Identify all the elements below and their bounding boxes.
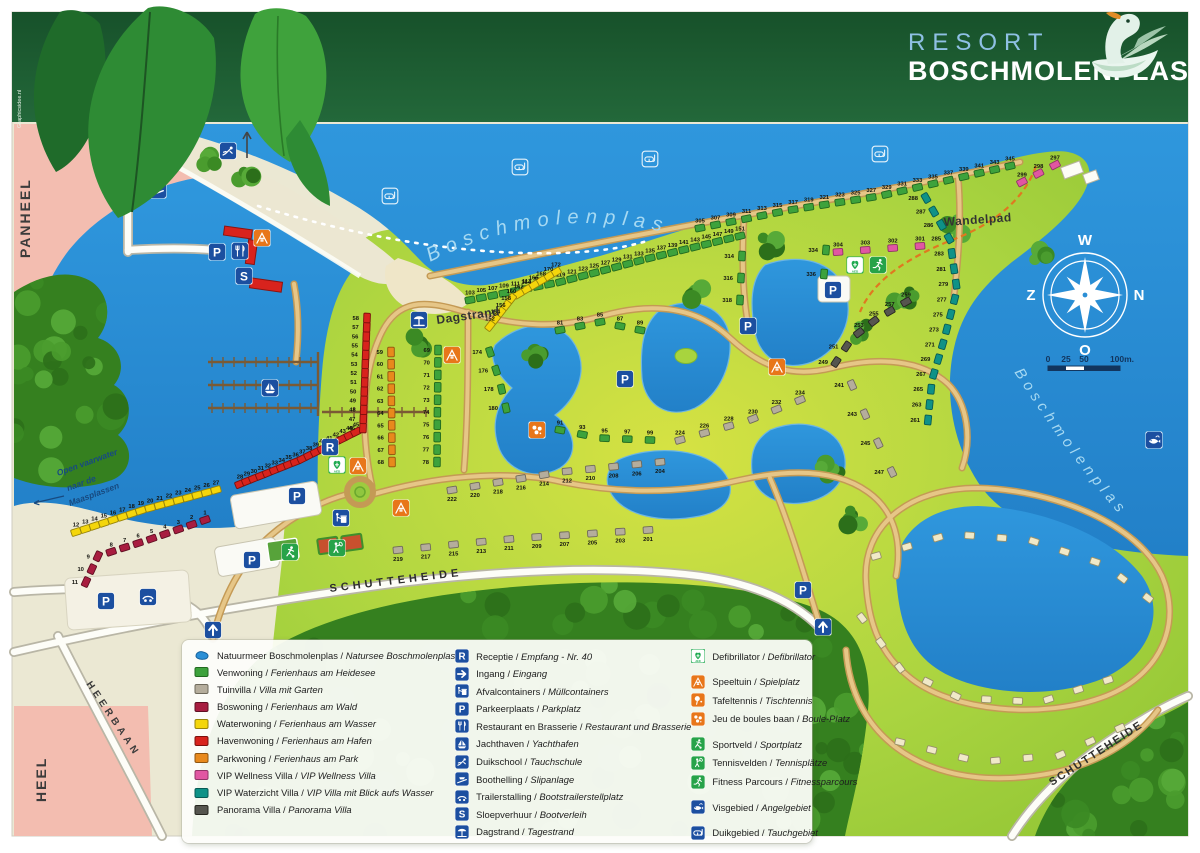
svg-text:10: 10 [77,567,83,573]
legend-item-label: Fitness Parcours / Fitnessparcours [712,776,857,787]
playground-icon [444,347,461,364]
svg-text:230: 230 [748,409,758,415]
plot-venwoning: 343 [989,160,1000,174]
svg-text:147: 147 [713,232,723,238]
compass-n: N [1134,287,1145,304]
playground-icon [769,359,786,376]
trash-icon [455,684,469,698]
svg-text:75: 75 [423,423,430,429]
svg-text:224: 224 [675,431,685,437]
parking-icon [289,488,306,505]
beach-icon [455,825,469,839]
svg-text:66: 66 [377,436,384,442]
svg-text:263: 263 [912,403,922,409]
svg-text:174: 174 [472,350,482,356]
legend-item: Boothelling / Slipanlage [455,772,691,786]
plot-chalet [1013,697,1023,704]
svg-text:267: 267 [916,372,926,378]
plot-venwoning: 143 [690,238,701,252]
legend-item-label: Waterwoning / Ferienhaus am Wasser [217,718,376,729]
svg-text:208: 208 [609,474,619,480]
legend-item: Defibrillator / Defibrillator [691,649,857,663]
svg-text:25: 25 [1061,354,1071,364]
svg-text:298: 298 [1034,164,1044,170]
legend-item-label: Venwoning / Ferienhaus am Heidesee [217,667,375,678]
svg-text:215: 215 [449,552,459,558]
parking-icon [795,582,812,599]
legend-item-label: Parkwoning / Ferienhaus am Park [217,753,358,764]
svg-text:297: 297 [1050,156,1060,162]
legend-item-label: Boothelling / Slipanlage [476,774,574,785]
plot-venwoning: 139 [667,243,678,257]
compass-z: Z [1026,287,1035,304]
svg-text:55: 55 [352,344,359,350]
svg-text:316: 316 [723,276,733,282]
svg-text:207: 207 [560,542,570,548]
plot-chalet [965,532,975,539]
svg-text:214: 214 [539,482,549,488]
svg-text:336: 336 [806,272,816,278]
svg-text:203: 203 [615,539,625,545]
svg-text:321: 321 [819,195,829,201]
sport-icon [691,737,705,751]
svg-text:299: 299 [1017,173,1027,179]
legend-item-label: Parkeerplaats / Parkplatz [476,703,581,714]
svg-text:241: 241 [834,383,844,389]
playground-icon [350,458,367,475]
svg-text:210: 210 [586,476,596,482]
svg-text:0: 0 [1046,354,1051,364]
playground-icon [691,675,705,689]
svg-text:178: 178 [484,387,494,393]
svg-text:305: 305 [695,219,705,225]
svg-text:7: 7 [123,538,126,544]
svg-text:226: 226 [700,424,710,430]
svg-text:16: 16 [110,510,117,516]
svg-text:107: 107 [488,286,498,292]
boswoning-swatch [194,701,210,713]
svg-text:335: 335 [928,174,938,180]
vip_wellness-swatch [194,769,210,781]
tennis-icon [691,756,705,770]
svg-text:51: 51 [350,380,357,386]
plot-venwoning: 321 [819,195,830,208]
plot-tuinvilla: 226 [699,424,710,438]
svg-text:217: 217 [421,554,431,560]
svg-text:261: 261 [910,418,920,424]
svg-text:125: 125 [589,263,599,269]
aed-icon [847,257,864,274]
svg-text:11: 11 [72,580,79,586]
legend-item-label: Boswoning / Ferienhaus am Wald [217,701,357,712]
svg-text:2: 2 [190,515,193,521]
fish-icon [691,800,705,814]
svg-text:311: 311 [742,209,752,215]
svg-text:287: 287 [916,210,926,216]
legend-item: Sloepverhuur / Bootverleih [455,807,691,821]
plot-chalet [997,534,1007,541]
legend-item-label: Defibrillator / Defibrillator [712,651,815,662]
svg-text:73: 73 [423,398,430,404]
legend-item: Dagstrand / Tagestrand [455,825,691,839]
svg-text:14: 14 [91,516,98,522]
plot-chalet [990,757,1000,764]
plot-venwoning: 319 [803,198,814,211]
legend-item-label: VIP Wellness Villa / VIP Wellness Villa [217,770,376,781]
plot-venwoning: 339 [958,167,969,181]
legend-item: Parkwoning / Ferienhaus am Park [194,752,455,764]
playground-icon [254,230,271,247]
legend-item-label: Sportveld / Sportplatz [712,739,802,750]
legend-activities: Defibrillator / DefibrillatorSpeeltuin /… [691,649,857,837]
svg-text:318: 318 [722,298,732,304]
plot-venwoning: 313 [757,206,768,220]
plot-venwoning: 311 [741,209,752,223]
svg-text:211: 211 [504,546,514,552]
legend-item: VIP Wellness Villa / VIP Wellness Villa [194,769,455,781]
parkwoning-swatch [194,752,210,764]
plot-venwoning: 337 [943,171,954,185]
svg-text:343: 343 [990,160,1000,166]
legend-item: Havenwoning / Ferienhaus am Hafen [194,735,455,747]
svg-text:64: 64 [377,411,384,417]
svg-text:46: 46 [349,426,356,432]
plot-venwoning: 137 [656,246,667,260]
legend-item: Boswoning / Ferienhaus am Wald [194,701,455,713]
plot-vip_wellness: 302 [888,239,898,252]
svg-text:201: 201 [643,537,653,543]
svg-text:59: 59 [377,350,384,356]
legend-item-label: VIP Waterzicht Villa / VIP Villa mit Bli… [217,787,433,798]
svg-text:12: 12 [73,523,79,529]
svg-text:65: 65 [377,423,384,429]
svg-text:333: 333 [913,178,923,184]
legend-item: Waterwoning / Ferienhaus am Wasser [194,718,455,730]
svg-text:103: 103 [465,291,475,297]
svg-text:48: 48 [349,408,356,414]
venwoning-swatch [194,666,210,678]
svg-text:139: 139 [668,243,678,249]
fish-icon [1146,432,1163,449]
svg-text:137: 137 [657,246,667,252]
svg-text:145: 145 [701,235,711,241]
plot-venwoning: 147 [712,232,723,246]
svg-text:77: 77 [423,448,429,454]
svg-text:243: 243 [847,412,857,418]
sport-icon [282,544,299,561]
parking-icon [825,282,842,299]
svg-text:158: 158 [501,296,511,302]
legend-item-label: Receptie / Empfang - Nr. 40 [476,651,592,662]
boules-icon [529,422,546,439]
vip_waterzicht-swatch [194,787,210,799]
entrance-icon [205,622,222,639]
svg-text:212: 212 [562,478,572,484]
svg-text:50: 50 [350,389,356,395]
plot-venwoning: 315 [772,203,783,217]
legend-item-label: Speeltuin / Spielplatz [712,676,800,687]
legend-item-label: Natuurmeer Boschmolenplas / Natursee Bos… [217,650,455,661]
svg-text:302: 302 [888,239,898,245]
svg-text:301: 301 [915,237,925,243]
svg-text:339: 339 [959,167,969,173]
svg-text:325: 325 [851,190,861,196]
svg-text:27: 27 [213,481,219,487]
svg-text:247: 247 [874,470,884,476]
legend-item-label: Tennisvelden / Tennisplätze [712,757,827,768]
legend-item: Tennisvelden / Tennisplätze [691,756,857,770]
plot-venwoning: 317 [788,200,798,213]
svg-text:204: 204 [655,469,665,475]
svg-text:87: 87 [617,317,623,323]
svg-text:76: 76 [423,435,430,441]
svg-text:317: 317 [788,200,798,206]
svg-text:323: 323 [835,193,845,199]
legend-item: Afvalcontainers / Müllcontainers [455,684,691,698]
plot-venwoning: 135 [645,249,656,263]
svg-text:100m.: 100m. [1110,354,1134,364]
svg-text:271: 271 [925,342,935,348]
plot-vip_wellness: 301 [915,237,926,250]
legend-item: Tafeltennis / Tischtennis [691,693,857,707]
svg-text:50: 50 [1079,354,1089,364]
svg-text:97: 97 [624,430,630,436]
svg-text:334: 334 [808,248,818,254]
tennis-icon [329,540,346,557]
playground-icon [393,500,410,517]
svg-text:60: 60 [377,362,383,368]
svg-text:93: 93 [579,425,586,431]
svg-text:337: 337 [944,171,954,177]
svg-text:95: 95 [601,429,608,435]
svg-text:219: 219 [393,557,403,563]
svg-text:78: 78 [423,460,430,466]
svg-text:72: 72 [423,385,429,391]
legend-item: Speeltuin / Spielplatz [691,675,857,689]
svg-text:327: 327 [866,188,876,194]
plot-venwoning: 329 [881,185,892,199]
havenwoning-swatch [194,735,210,747]
plot-venwoning: 151 [735,227,746,241]
svg-text:105: 105 [476,288,486,294]
trailer-icon [140,589,157,606]
svg-text:19: 19 [138,501,145,507]
plot-venwoning: 107 [487,286,498,300]
legend-item-label: Dagstrand / Tagestrand [476,826,574,837]
svg-text:47: 47 [349,417,355,423]
label-heel: HEEL [33,757,49,802]
svg-text:213: 213 [476,549,486,555]
svg-text:149: 149 [724,229,734,235]
svg-text:91: 91 [557,421,564,427]
label-panheel: PANHEEL [17,178,33,258]
svg-text:285: 285 [931,236,941,242]
parking-icon [98,593,115,610]
legend-item: Ingang / Eingang [455,667,691,681]
tuinvilla-swatch [194,683,210,695]
svg-text:314: 314 [724,254,734,260]
sailboat-icon [455,737,469,751]
svg-text:143: 143 [690,238,700,244]
svg-text:52: 52 [351,371,357,377]
legend-item-label: Tafeltennis / Tischtennis [712,695,812,706]
tabletennis-icon [691,693,705,707]
svg-text:222: 222 [447,497,457,503]
plot-venwoning: 103 [465,291,476,305]
plot-venwoning: 331 [897,181,908,195]
legend-item: Duikschool / Tauchschule [455,755,691,769]
restaurant-icon [455,719,469,733]
beach-icon [411,312,428,329]
svg-text:218: 218 [493,489,503,495]
svg-text:249: 249 [818,360,828,366]
legend-item: Jeu de boules baan / Boule-Platz [691,712,857,726]
entrance-icon [815,619,832,636]
plot-venwoning: 149 [723,229,734,243]
svg-text:331: 331 [897,181,907,187]
svg-text:141: 141 [679,240,689,246]
legend-item: Sportveld / Sportplatz [691,737,857,751]
arrow-icon [455,667,469,681]
svg-text:89: 89 [637,321,644,327]
legend-item-label: Afvalcontainers / Müllcontainers [476,686,608,697]
svg-text:123: 123 [578,266,588,272]
plot-venwoning: 105 [476,288,487,302]
svg-text:341: 341 [974,164,984,170]
plot-venwoning: 345 [1005,157,1016,171]
trailer-icon [455,790,469,804]
rental-icon [455,807,469,821]
plot-venwoning: 333 [912,178,923,192]
legend-item: Jachthaven / Yachthafen [455,737,691,751]
svg-text:15: 15 [101,513,108,519]
svg-text:269: 269 [921,357,931,363]
svg-text:21: 21 [156,496,163,502]
legend-services: Receptie / Empfang - Nr. 40Ingang / Eing… [455,649,691,837]
svg-text:81: 81 [557,321,564,327]
svg-text:309: 309 [726,212,736,218]
svg-text:135: 135 [645,249,655,255]
plot-venwoning: 121 [566,269,577,283]
svg-text:253: 253 [854,323,864,329]
svg-text:329: 329 [882,185,892,191]
legend-item: Natuurmeer Boschmolenplas / Natursee Bos… [194,649,455,661]
svg-text:315: 315 [773,203,783,209]
plot-venwoning: 131 [622,254,633,268]
legend-item-label: Jachthaven / Yachthafen [476,738,579,749]
svg-text:345: 345 [1005,157,1015,163]
legend-panel: Natuurmeer Boschmolenplas / Natursee Bos… [182,640,812,843]
legend-item: Fitness Parcours / Fitnessparcours [691,775,857,789]
svg-text:288: 288 [908,196,918,202]
svg-text:129: 129 [612,257,622,263]
legend-item: Venwoning / Ferienhaus am Heidesee [194,666,455,678]
plot-vip_wellness: 303 [860,241,871,254]
plot-venwoning: 125 [589,263,600,277]
legend-item-label: Trailerstalling / Bootstrailerstellplatz [476,791,623,802]
svg-text:209: 209 [532,544,542,550]
diver-icon [220,143,237,160]
legend-item: Receptie / Empfang - Nr. 40 [455,649,691,663]
legend-item-label: Panorama Villa / Panorama Villa [217,804,352,815]
aed-icon [329,457,346,474]
svg-text:151: 151 [735,227,745,233]
plot-chalet [981,696,991,703]
svg-text:257: 257 [885,302,895,308]
svg-text:71: 71 [423,373,430,379]
svg-text:54: 54 [351,353,358,359]
fitness-icon [870,257,887,274]
svg-text:61: 61 [377,374,384,380]
svg-text:63: 63 [377,399,384,405]
svg-text:58: 58 [353,316,360,322]
legend-item-label: Tuinvilla / Villa mit Garten [217,684,323,695]
legend-item-label: Ingang / Eingang [476,668,547,679]
legend-item-label: Duikgebied / Tauchgebiet [712,827,818,838]
svg-text:259: 259 [901,293,911,299]
svg-text:180: 180 [488,406,498,412]
svg-text:62: 62 [377,387,383,393]
legend-item-label: Jeu de boules baan / Boule-Platz [712,713,850,724]
plot-venwoning: 325 [850,190,861,203]
legend-item: Parkeerplaats / Parkplatz [455,702,691,716]
legend-item-label: Havenwoning / Ferienhaus am Hafen [217,735,372,746]
parking-icon [209,244,226,261]
credit-text: Graphicsidee.nl [17,90,23,128]
svg-text:13: 13 [82,520,89,526]
parking-icon [617,371,634,388]
svg-text:49: 49 [350,399,357,405]
plot-venwoning: 309 [726,212,737,226]
svg-text:313: 313 [757,206,767,212]
reception-icon [322,439,339,456]
plot-venwoning: 133 [633,251,644,265]
svg-text:265: 265 [913,387,923,393]
svg-text:25: 25 [194,486,201,492]
svg-text:273: 273 [929,327,939,333]
svg-text:307: 307 [711,215,721,221]
plot-venwoning: 141 [678,240,689,254]
svg-text:133: 133 [634,251,644,257]
legend-item-label: Sloepverhuur / Bootverleih [476,809,587,820]
compass-w: W [1078,232,1093,249]
svg-text:286: 286 [924,223,934,229]
svg-text:83: 83 [577,317,584,323]
plot-venwoning: 327 [866,188,876,201]
plot-chalet [1023,754,1033,761]
parking-icon [244,552,261,569]
svg-text:216: 216 [516,486,526,492]
lake-swatch [194,649,210,661]
plot-venwoning: 307 [710,215,721,229]
panorama-swatch [194,804,210,816]
slipway-icon [455,772,469,786]
resort-logo: RESORT BOSCHMOLENPLAS [908,30,1158,86]
legend-item-label: Duikschool / Tauchschule [476,756,582,767]
plot-venwoning: 123 [578,266,589,280]
svg-text:24: 24 [185,488,192,494]
fitness-icon [691,775,705,789]
svg-text:131: 131 [623,254,633,260]
svg-text:220: 220 [470,493,480,499]
svg-text:205: 205 [588,541,598,547]
svg-text:57: 57 [352,325,358,331]
plot-venwoning: 335 [928,174,939,188]
svg-text:206: 206 [632,471,642,477]
plot-venwoning: 145 [701,235,712,249]
svg-text:251: 251 [829,344,839,350]
legend-item: Panorama Villa / Panorama Villa [194,804,455,816]
